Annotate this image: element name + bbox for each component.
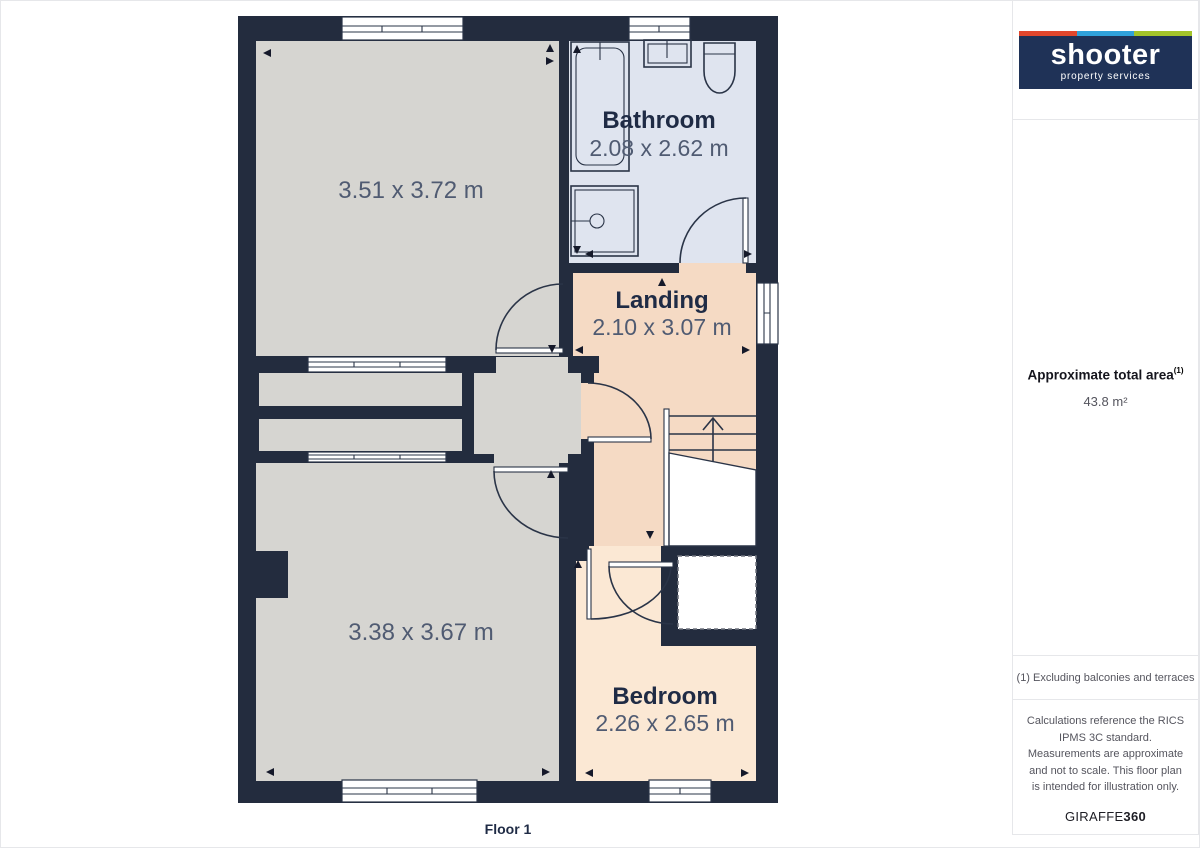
eaves-strip-bottom [259, 419, 462, 451]
stair-void [669, 453, 756, 546]
eaves-strip-top [259, 373, 462, 406]
doorway-opening [496, 357, 568, 373]
room-top-left-dimensions: 3.51 x 3.72 m [338, 177, 483, 204]
floor-plan: 3.51 x 3.72 m Bathroom 2.08 x 2.62 m Lan… [1, 1, 1011, 847]
logo-wordmark: shooter property services [1019, 36, 1192, 89]
total-area-value: 43.8 m² [1083, 394, 1127, 409]
wall-segment [581, 373, 594, 383]
company-logo: shooter property services [1019, 31, 1192, 89]
footnote-text: (1) Excluding balconies and terraces [1017, 672, 1195, 684]
footnote-section: (1) Excluding balconies and terraces [1013, 656, 1198, 701]
window-bedroom [649, 780, 711, 802]
info-sidebar: shooter property services Approximate to… [1012, 0, 1199, 835]
window-internal-top [308, 357, 446, 372]
total-area-title: Approximate total area(1) [1027, 366, 1183, 384]
stripe-red-segment [1019, 31, 1077, 36]
wall-segment [573, 454, 594, 546]
storage-dashed-area [678, 556, 756, 629]
doorway-opening [494, 451, 568, 463]
window-bathroom [629, 17, 690, 40]
doorway-opening [679, 263, 746, 273]
stair-banister [664, 409, 669, 546]
window-landing [757, 283, 778, 344]
bathroom-label: Bathroom [602, 107, 715, 134]
watermark-prefix: GIRAFFE [1065, 809, 1123, 824]
stripe-blue-segment [1077, 31, 1135, 36]
chimney-breast [256, 551, 288, 598]
landing-label: Landing [615, 287, 708, 314]
floor-label: Floor 1 [485, 821, 532, 837]
window-bottom-left [342, 780, 477, 802]
room-bottom-left-dimensions: 3.38 x 3.67 m [348, 619, 493, 646]
window-top-left [342, 17, 463, 40]
logo-stripe [1019, 31, 1192, 36]
bedroom-label: Bedroom [612, 683, 717, 710]
brand-name: shooter [1051, 41, 1161, 70]
bathroom-dimensions: 2.08 x 2.62 m [589, 135, 728, 161]
floorplan-page: 3.51 x 3.72 m Bathroom 2.08 x 2.62 m Lan… [0, 0, 1200, 848]
bedroom-dimensions: 2.26 x 2.65 m [595, 710, 734, 736]
inner-lobby-floor [474, 373, 581, 454]
footnote-marker: (1) [1174, 366, 1184, 375]
disclaimer-section: Calculations reference the RICS IPMS 3C … [1013, 700, 1198, 834]
window-internal-bottom [308, 452, 446, 462]
total-area-title-text: Approximate total area [1027, 367, 1173, 382]
total-area-section: Approximate total area(1) 43.8 m² [1013, 120, 1198, 656]
disclaimer-text: Calculations reference the RICS IPMS 3C … [1026, 713, 1185, 796]
brand-tagline: property services [1061, 71, 1151, 82]
watermark-suffix: 360 [1123, 809, 1146, 824]
logo-section: shooter property services [1013, 1, 1198, 120]
landing-dimensions: 2.10 x 3.07 m [592, 314, 731, 340]
stripe-green-segment [1134, 31, 1192, 36]
giraffe360-watermark: GIRAFFE360 [1026, 809, 1185, 824]
